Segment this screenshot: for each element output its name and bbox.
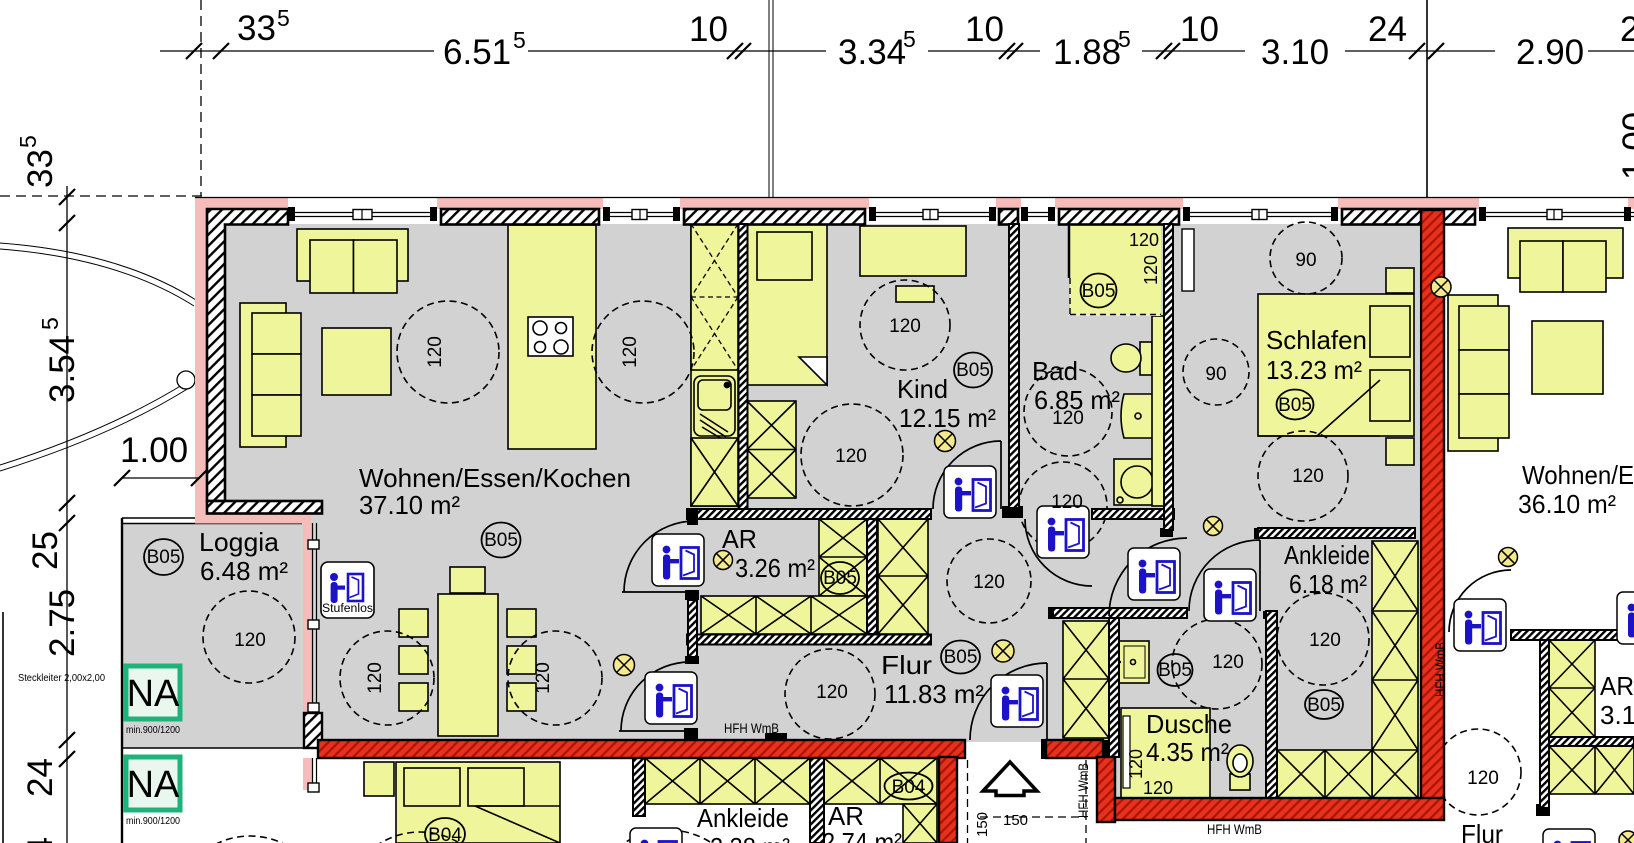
svg-text:120: 120 (1212, 652, 1244, 673)
svg-text:3.1: 3.1 (1600, 700, 1634, 730)
svg-text:120: 120 (1292, 466, 1324, 487)
svg-text:13.23 m²: 13.23 m² (1266, 355, 1362, 385)
svg-text:B05: B05 (1307, 695, 1341, 716)
svg-text:B05: B05 (944, 647, 978, 668)
svg-text:6.48 m²: 6.48 m² (200, 556, 288, 586)
svg-text:120: 120 (816, 682, 848, 703)
svg-text:5: 5 (1118, 26, 1131, 52)
svg-text:5: 5 (15, 135, 41, 148)
svg-text:B05: B05 (823, 568, 857, 589)
svg-text:120: 120 (1141, 255, 1161, 285)
svg-text:3.34: 3.34 (838, 33, 906, 72)
svg-text:2.38 m²: 2.38 m² (710, 832, 790, 843)
svg-text:5: 5 (37, 317, 63, 330)
svg-text:33: 33 (21, 149, 60, 188)
svg-text:6.18 m²: 6.18 m² (1289, 569, 1367, 599)
svg-text:36.10 m²: 36.10 m² (1518, 489, 1616, 519)
svg-text:1.00: 1.00 (120, 431, 188, 470)
svg-text:B04: B04 (892, 777, 926, 798)
svg-text:24: 24 (21, 758, 60, 797)
svg-text:Steckleiter 2,00x2,00: Steckleiter 2,00x2,00 (18, 672, 105, 684)
svg-text:120: 120 (1051, 492, 1083, 513)
svg-text:min.900/1200: min.900/1200 (126, 815, 180, 827)
svg-text:5: 5 (513, 27, 526, 53)
svg-text:120: 120 (1309, 630, 1341, 651)
svg-text:Wohnen/Essen/Kochen: Wohnen/Essen/Kochen (359, 463, 631, 493)
svg-text:150: 150 (974, 812, 991, 837)
svg-text:Stufenlos: Stufenlos (322, 603, 373, 615)
svg-text:25: 25 (26, 531, 65, 570)
svg-text:B05: B05 (1278, 395, 1312, 416)
svg-text:90: 90 (1205, 364, 1226, 385)
svg-text:Ankleide: Ankleide (697, 803, 789, 833)
svg-text:Ankleide: Ankleide (1284, 540, 1370, 570)
svg-text:120: 120 (533, 662, 554, 694)
svg-text:NA: NA (127, 673, 180, 715)
svg-text:37.10 m²: 37.10 m² (359, 490, 460, 520)
svg-text:120: 120 (973, 572, 1005, 593)
svg-text:24: 24 (1620, 10, 1634, 49)
svg-text:10: 10 (965, 10, 1004, 49)
svg-text:150: 150 (1003, 812, 1028, 829)
svg-text:Kind: Kind (897, 374, 948, 404)
svg-text:Bad: Bad (1032, 356, 1078, 386)
svg-text:120: 120 (1467, 768, 1499, 789)
svg-text:HFH WmB: HFH WmB (724, 721, 779, 736)
svg-text:B05: B05 (147, 547, 181, 568)
svg-text:2.75: 2.75 (43, 589, 82, 657)
svg-text:1.88: 1.88 (1053, 33, 1121, 72)
svg-text:AR: AR (722, 524, 757, 554)
svg-text:HFH WmB: HFH WmB (1207, 822, 1262, 837)
svg-text:B05: B05 (1082, 281, 1116, 302)
svg-text:2.90: 2.90 (1516, 33, 1584, 72)
svg-text:B05: B05 (484, 530, 518, 551)
svg-text:Flur: Flur (1461, 819, 1503, 843)
svg-text:120: 120 (365, 662, 386, 694)
svg-text:90: 90 (1295, 250, 1316, 271)
svg-text:120: 120 (425, 336, 446, 368)
svg-text:HFH WmB: HFH WmB (1076, 763, 1091, 818)
svg-text:min.900/1200: min.900/1200 (126, 724, 180, 736)
svg-text:6.51: 6.51 (443, 33, 511, 72)
svg-text:2.74 m²: 2.74 m² (822, 827, 902, 843)
svg-text:B05: B05 (1158, 660, 1192, 681)
svg-text:Flur: Flur (881, 650, 932, 680)
svg-text:120: 120 (889, 316, 921, 337)
svg-text:11.83 m²: 11.83 m² (884, 679, 984, 709)
svg-text:120: 120 (835, 446, 867, 467)
svg-text:5: 5 (277, 5, 290, 31)
svg-text:B04: B04 (428, 825, 462, 843)
svg-text:24: 24 (1368, 10, 1407, 49)
svg-text:10: 10 (1180, 10, 1219, 49)
svg-text:Wohnen/E: Wohnen/E (1522, 460, 1634, 490)
svg-text:120: 120 (1126, 749, 1146, 779)
svg-text:12.15 m²: 12.15 m² (899, 403, 996, 433)
svg-text:Schlafen: Schlafen (1266, 325, 1367, 355)
svg-text:AR: AR (1600, 671, 1634, 701)
svg-text:120: 120 (234, 630, 266, 651)
svg-text:3.54: 3.54 (21, 837, 60, 843)
svg-text:120: 120 (1143, 778, 1173, 798)
svg-text:Loggia: Loggia (199, 527, 280, 557)
svg-text:120: 120 (620, 336, 641, 368)
svg-text:120: 120 (1129, 230, 1159, 250)
svg-text:5: 5 (903, 26, 916, 52)
svg-text:3.54: 3.54 (43, 335, 82, 403)
svg-text:NA: NA (127, 764, 180, 806)
svg-text:1.00: 1.00 (1616, 112, 1634, 180)
svg-text:3.26 m²: 3.26 m² (735, 553, 815, 583)
svg-text:Dusche: Dusche (1146, 709, 1232, 739)
svg-text:10: 10 (689, 10, 728, 49)
svg-text:120: 120 (1052, 408, 1084, 429)
svg-text:3.10: 3.10 (1261, 33, 1329, 72)
svg-text:B05: B05 (956, 360, 990, 381)
svg-text:4.35 m²: 4.35 m² (1146, 737, 1229, 767)
svg-text:33: 33 (237, 9, 276, 48)
svg-text:HFH WmB: HFH WmB (1433, 642, 1448, 697)
